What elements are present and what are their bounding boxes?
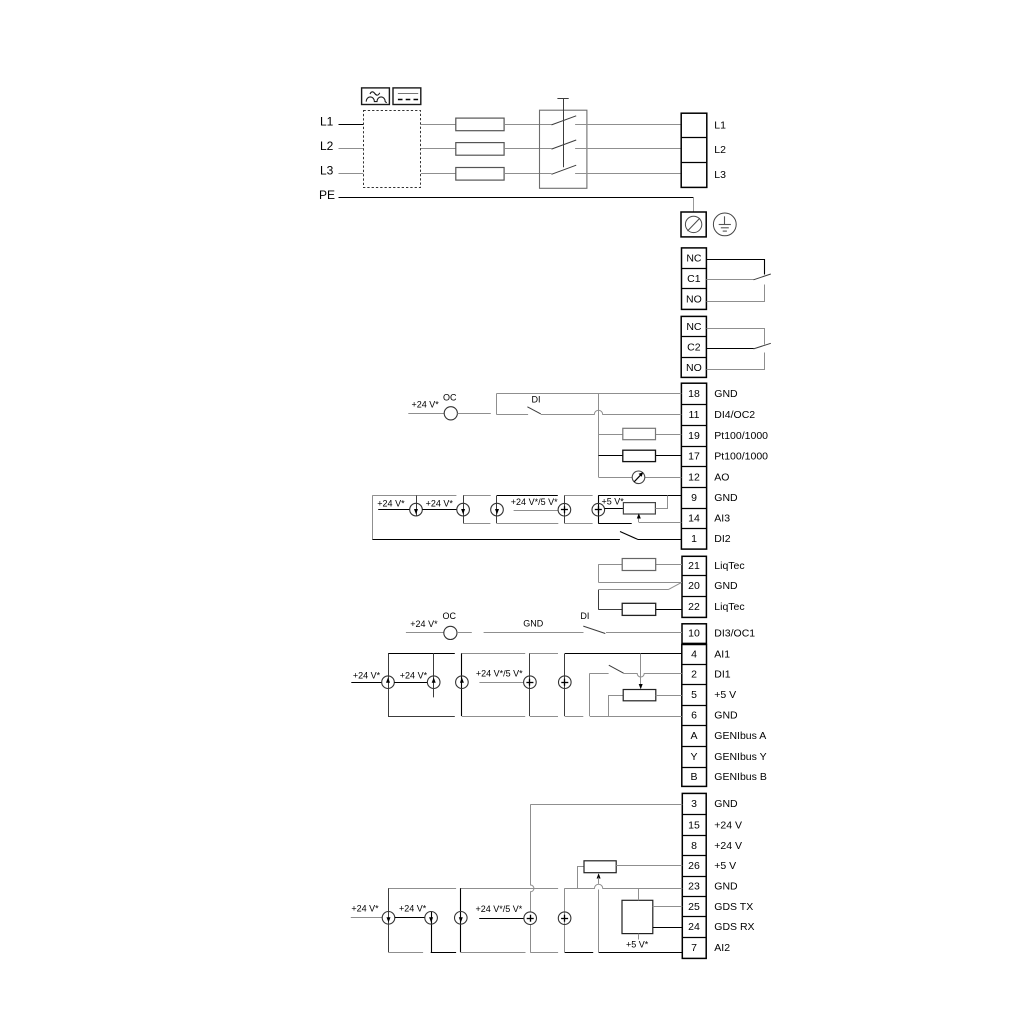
svg-text:AI2: AI2 xyxy=(714,942,730,954)
svg-text:C1: C1 xyxy=(687,273,701,285)
svg-text:2: 2 xyxy=(691,668,697,680)
svg-text:+24 V*: +24 V* xyxy=(426,498,454,508)
svg-text:11: 11 xyxy=(689,409,700,421)
svg-text:GND: GND xyxy=(714,798,738,810)
svg-text:+24 V*/5 V*: +24 V*/5 V* xyxy=(476,904,523,914)
svg-text:L2: L2 xyxy=(320,139,334,153)
svg-text:GDS RX: GDS RX xyxy=(714,921,754,933)
svg-text:10: 10 xyxy=(688,628,700,640)
svg-text:1: 1 xyxy=(691,533,697,545)
svg-text:GND: GND xyxy=(714,388,738,400)
svg-text:DI2: DI2 xyxy=(714,533,731,545)
svg-text:L1: L1 xyxy=(714,120,726,132)
svg-text:+5 V*: +5 V* xyxy=(602,497,625,507)
svg-text:DI4/OC2: DI4/OC2 xyxy=(714,409,755,421)
svg-text:L3: L3 xyxy=(320,164,334,178)
svg-text:NC: NC xyxy=(686,252,702,264)
svg-text:+24 V: +24 V xyxy=(714,840,742,852)
svg-text:+24 V*/5 V*: +24 V*/5 V* xyxy=(511,497,558,507)
svg-text:+24 V*: +24 V* xyxy=(400,671,428,681)
svg-text:25: 25 xyxy=(688,901,700,913)
svg-text:24: 24 xyxy=(688,921,700,933)
svg-text:OC: OC xyxy=(443,611,457,621)
svg-text:Pt100/1000: Pt100/1000 xyxy=(714,430,768,442)
svg-text:20: 20 xyxy=(688,580,700,592)
svg-text:19: 19 xyxy=(688,430,700,442)
svg-text:AI3: AI3 xyxy=(714,512,730,524)
svg-text:A: A xyxy=(690,730,697,742)
svg-text:NC: NC xyxy=(686,321,702,333)
svg-text:GND: GND xyxy=(714,492,738,504)
svg-text:LiqTec: LiqTec xyxy=(714,560,744,572)
svg-text:22: 22 xyxy=(688,601,700,613)
svg-text:+24 V*: +24 V* xyxy=(377,498,405,508)
svg-text:Pt100/1000: Pt100/1000 xyxy=(714,451,768,463)
svg-text:GND: GND xyxy=(714,881,738,893)
svg-text:14: 14 xyxy=(688,512,700,524)
svg-text:15: 15 xyxy=(688,819,700,831)
svg-text:17: 17 xyxy=(688,451,700,463)
svg-text:NO: NO xyxy=(686,362,702,374)
svg-text:GDS TX: GDS TX xyxy=(714,901,753,913)
svg-text:L2: L2 xyxy=(714,144,726,156)
svg-text:DI: DI xyxy=(532,394,541,404)
svg-text:NO: NO xyxy=(686,293,702,305)
svg-text:26: 26 xyxy=(688,860,700,872)
svg-text:L1: L1 xyxy=(320,115,334,129)
svg-text:+24 V*: +24 V* xyxy=(399,903,427,913)
svg-text:+24 V*: +24 V* xyxy=(353,671,381,681)
svg-text:+24 V*: +24 V* xyxy=(412,399,440,409)
svg-text:12: 12 xyxy=(688,471,700,483)
svg-text:5: 5 xyxy=(691,689,697,701)
svg-text:LiqTec: LiqTec xyxy=(714,601,744,613)
svg-text:GND: GND xyxy=(714,710,738,722)
svg-text:+24 V*: +24 V* xyxy=(351,903,379,913)
svg-text:18: 18 xyxy=(688,388,700,400)
svg-text:L3: L3 xyxy=(714,169,726,181)
svg-text:8: 8 xyxy=(691,840,697,852)
svg-text:PE: PE xyxy=(319,188,335,202)
svg-text:+24 V*/5 V*: +24 V*/5 V* xyxy=(476,668,523,678)
svg-text:+5 V: +5 V xyxy=(714,860,736,872)
svg-text:21: 21 xyxy=(688,560,700,572)
svg-text:DI3/OC1: DI3/OC1 xyxy=(714,628,755,640)
svg-text:C2: C2 xyxy=(687,342,701,354)
svg-text:OC: OC xyxy=(443,392,457,402)
svg-text:GND: GND xyxy=(714,580,738,592)
svg-text:GENIbus A: GENIbus A xyxy=(714,730,766,742)
svg-text:DI: DI xyxy=(580,611,589,621)
svg-text:+5 V: +5 V xyxy=(714,689,736,701)
svg-text:B: B xyxy=(690,771,697,783)
svg-text:6: 6 xyxy=(691,710,697,722)
svg-text:+24 V*: +24 V* xyxy=(410,619,438,629)
svg-text:GENIbus Y: GENIbus Y xyxy=(714,751,766,763)
svg-text:+24 V: +24 V xyxy=(714,819,742,831)
svg-text:AI1: AI1 xyxy=(714,648,730,660)
svg-text:AO: AO xyxy=(714,471,729,483)
svg-text:DI1: DI1 xyxy=(714,668,731,680)
svg-text:Y: Y xyxy=(690,751,697,763)
svg-text:4: 4 xyxy=(691,648,697,660)
svg-text:GENIbus B: GENIbus B xyxy=(714,771,767,783)
svg-text:9: 9 xyxy=(691,492,697,504)
svg-text:7: 7 xyxy=(691,942,697,954)
svg-text:+5 V*: +5 V* xyxy=(626,939,649,949)
svg-text:GND: GND xyxy=(523,618,544,628)
svg-text:3: 3 xyxy=(691,798,697,810)
svg-text:23: 23 xyxy=(688,881,700,893)
